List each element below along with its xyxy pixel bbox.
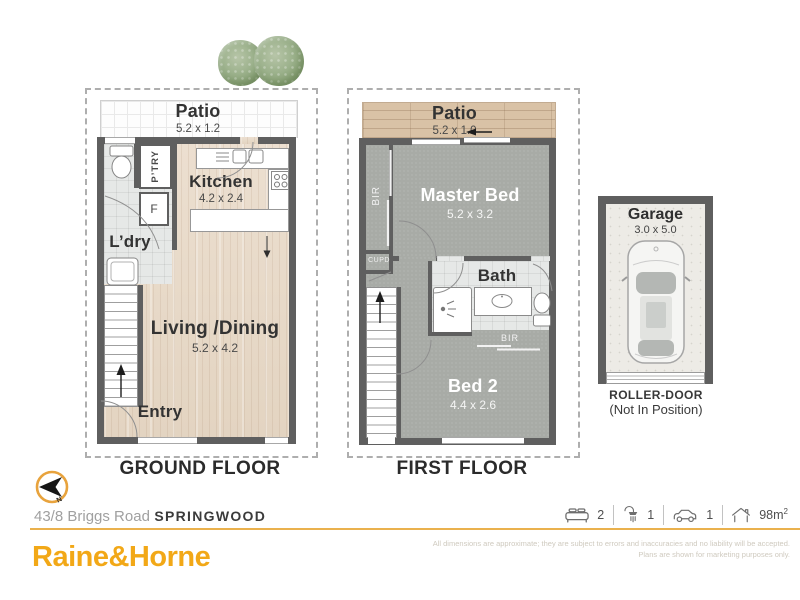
ff-bath-label: Bath bbox=[460, 266, 534, 286]
room-dims: 5.2 x 4.2 bbox=[140, 341, 290, 355]
gf-entry-label: Entry bbox=[130, 402, 190, 422]
gf-window-top bbox=[105, 137, 135, 144]
room-dims: 5.2 x 1.0 bbox=[362, 125, 547, 137]
divider bbox=[613, 505, 614, 525]
ground-floor-title: GROUND FLOOR bbox=[85, 458, 315, 480]
fridge-label: F bbox=[150, 202, 157, 216]
ff-master-label: Master Bed 5.2 x 3.2 bbox=[390, 185, 550, 221]
room-dims: 3.0 x 5.0 bbox=[606, 224, 705, 236]
bed-icon bbox=[565, 506, 589, 524]
compass-icon: N bbox=[32, 468, 72, 508]
room-name: Patio bbox=[362, 103, 547, 124]
gf-window-bottom-left bbox=[138, 437, 197, 444]
room-name: L’dry bbox=[106, 232, 154, 252]
shower-icon bbox=[622, 505, 639, 525]
ff-wall-cupd-top bbox=[366, 250, 393, 254]
roller-door-note: (Not In Position) bbox=[586, 402, 726, 417]
baths-count: 1 bbox=[647, 508, 655, 522]
house-icon bbox=[731, 506, 751, 525]
beds-count: 2 bbox=[597, 508, 605, 522]
ff-bed2-label: Bed 2 4.4 x 2.6 bbox=[398, 376, 548, 412]
gf-laundry-label: L’dry bbox=[106, 232, 154, 252]
floorplan-page: Patio 5.2 x 1.2 P’TRY F Kitchen 4.2 x 2.… bbox=[0, 0, 800, 600]
ff-robe-left: BIR bbox=[368, 165, 384, 227]
divider bbox=[722, 505, 723, 525]
roller-door-label: ROLLER-DOOR bbox=[596, 388, 716, 402]
room-dims: 5.2 x 3.2 bbox=[390, 207, 550, 221]
divider bbox=[663, 505, 664, 525]
robe-label: BIR bbox=[371, 186, 382, 206]
address-suburb: SPRINGWOOD bbox=[154, 508, 266, 524]
room-name: Garage bbox=[606, 206, 705, 224]
gf-kitchen-island bbox=[190, 209, 289, 232]
tree-icon bbox=[254, 36, 304, 86]
gf-fridge: F bbox=[139, 192, 169, 226]
ff-stairs-landing bbox=[368, 437, 395, 444]
ff-slider-door-left bbox=[412, 139, 460, 145]
ff-robe-bed2-label: BIR bbox=[480, 333, 540, 343]
room-name: Entry bbox=[130, 402, 190, 422]
room-dims: 4.4 x 2.6 bbox=[398, 398, 548, 412]
room-name: Master Bed bbox=[390, 185, 550, 206]
ff-vanity bbox=[474, 287, 532, 316]
ff-patio-label: Patio 5.2 x 1.0 bbox=[362, 103, 547, 137]
room-name: Kitchen bbox=[171, 172, 271, 192]
gf-kitchen-label: Kitchen 4.2 x 2.4 bbox=[171, 172, 271, 205]
ff-slider-door-right bbox=[464, 137, 510, 143]
property-stats: 2 1 1 98m2 bbox=[565, 502, 788, 528]
gf-pantry: P’TRY bbox=[139, 144, 172, 189]
room-name: Patio bbox=[100, 101, 296, 122]
footer-rule bbox=[30, 528, 800, 530]
gf-living-label: Living /Dining 5.2 x 4.2 bbox=[140, 318, 290, 355]
ff-wall-cupd-bottom bbox=[366, 270, 393, 274]
disclaimer: All dimensions are approximate; they are… bbox=[370, 538, 790, 560]
gf-kitchen-bench bbox=[196, 148, 289, 169]
ff-bath-door-gap bbox=[437, 256, 464, 261]
pantry-label: P’TRY bbox=[150, 150, 161, 183]
area-sup: 2 bbox=[784, 507, 788, 516]
car-icon bbox=[672, 507, 698, 524]
property-address: 43/8 Briggs Road SPRINGWOOD bbox=[34, 508, 266, 526]
ff-bath-door-gap2 bbox=[531, 256, 550, 261]
first-floor-title: FIRST FLOOR bbox=[347, 458, 577, 480]
garage-label: Garage 3.0 x 5.0 bbox=[606, 206, 705, 236]
gf-stove bbox=[271, 171, 289, 190]
ff-cupboard-label: CUPD bbox=[363, 257, 395, 264]
ff-wall-bath-left bbox=[428, 261, 432, 336]
room-dims: 4.2 x 2.4 bbox=[171, 193, 271, 205]
disclaimer-line1: All dimensions are approximate; they are… bbox=[370, 538, 790, 549]
ff-wall-under-shower bbox=[428, 332, 472, 336]
disclaimer-line2: Plans are shown for marketing purposes o… bbox=[370, 549, 790, 560]
gf-window-bottom-right bbox=[265, 437, 288, 444]
area-value: 98m2 bbox=[759, 507, 788, 522]
area-number: 98m bbox=[759, 509, 783, 523]
cars-count: 1 bbox=[706, 508, 714, 522]
room-name: Bath bbox=[460, 266, 534, 286]
room-name: Living /Dining bbox=[140, 318, 290, 340]
ff-wall-stairs bbox=[397, 287, 401, 438]
ff-window-bottom bbox=[442, 437, 524, 444]
gf-stairs bbox=[104, 285, 138, 407]
ff-stairs bbox=[366, 287, 397, 438]
garage-roller-door bbox=[606, 372, 705, 384]
room-name: Bed 2 bbox=[398, 376, 548, 397]
gf-patio-opening bbox=[240, 137, 258, 144]
brand-logo: Raine&Horne bbox=[32, 541, 210, 574]
room-dims: 5.2 x 1.2 bbox=[100, 123, 296, 135]
ff-shower bbox=[433, 287, 472, 334]
gf-patio-label: Patio 5.2 x 1.2 bbox=[100, 101, 296, 135]
address-street: 43/8 Briggs Road bbox=[34, 508, 150, 525]
